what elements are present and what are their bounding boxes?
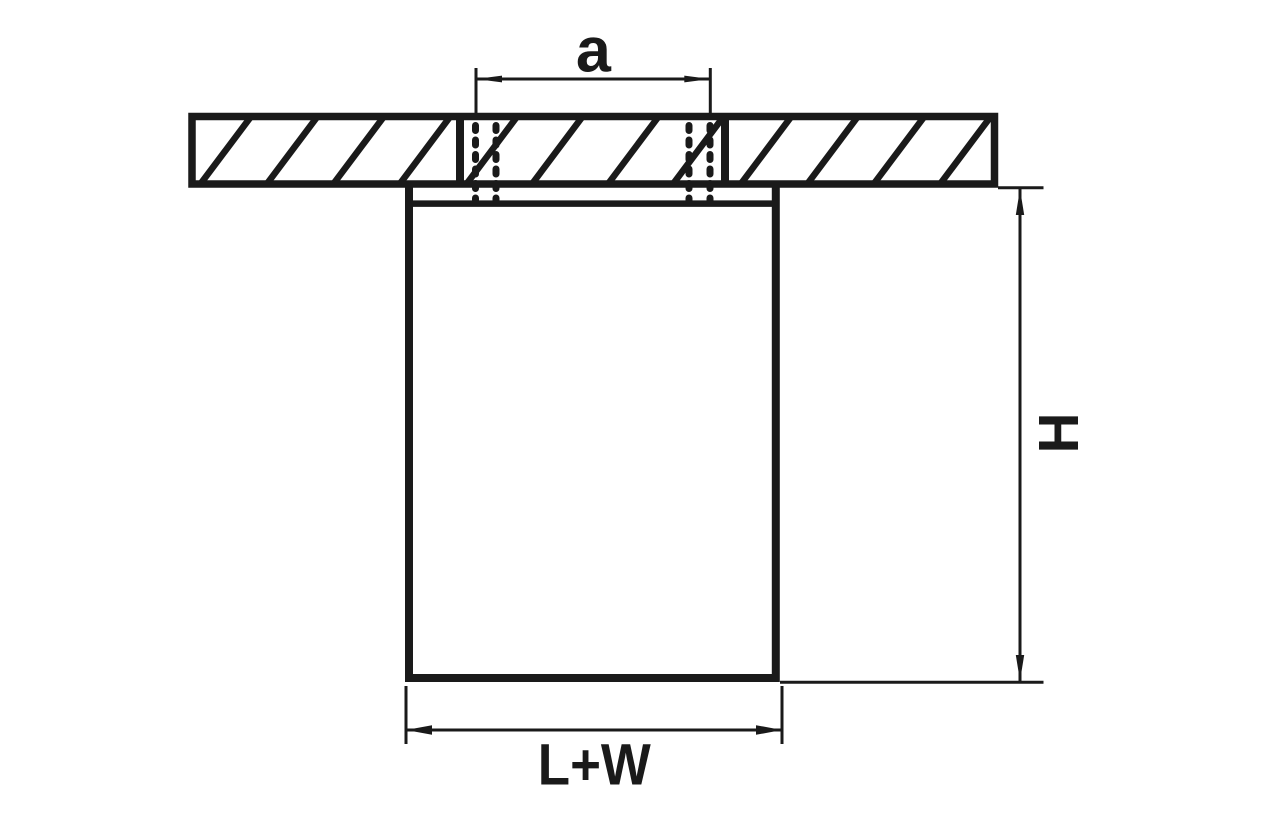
svg-text:L+W: L+W [538,733,651,798]
svg-text:H: H [1027,413,1090,454]
svg-text:a: a [576,16,612,86]
